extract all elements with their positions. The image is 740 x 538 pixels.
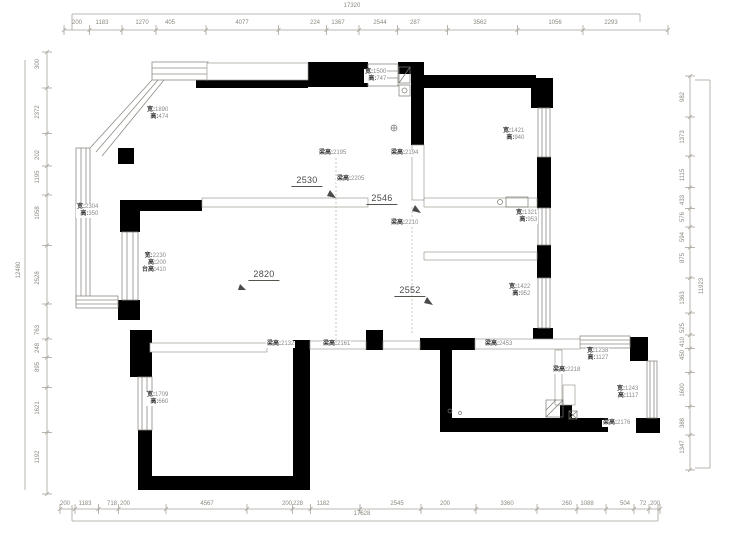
window-size-line: 宽:1243 (617, 386, 638, 393)
dimension-label-right: 1115 (680, 169, 686, 181)
dimension-label-bottom: 260 (562, 501, 572, 507)
dimension-label-right: 1600 (680, 383, 686, 396)
dimension-label-bottom: 3360 (500, 501, 513, 507)
dimension-label-top: 2293 (604, 20, 617, 26)
dimension-label-bottom: 718 (107, 501, 117, 507)
dimension-total-right: 11923 (699, 278, 705, 294)
window-size-line: 宽:1500 (365, 69, 386, 76)
beam-height-label: 梁高:2195 (318, 150, 347, 157)
window-size-label: 宽:1422高:952 (508, 284, 531, 298)
window-size-line: 宽:1709 (147, 392, 168, 399)
dimension-label-top: 200 (72, 20, 82, 26)
window-size-line: 宽:2230 (142, 253, 166, 260)
window-size-line: 宽:1422 (509, 284, 530, 291)
dimension-label-bottom: 72 (640, 501, 647, 507)
dimension-label-bottom: 2545 (390, 501, 403, 507)
dimension-label-bottom: 1183 (79, 501, 92, 507)
dimension-label-right: 1363 (680, 291, 686, 304)
window-size-line: 高:660 (147, 399, 168, 406)
dimension-label-left: 202 (35, 150, 41, 160)
walls-layer (118, 62, 660, 490)
window-size-line: 高:1117 (617, 393, 638, 400)
dimension-label-left: 1621 (35, 401, 41, 414)
window-size-label: 宽:2230高:200台高:410 (141, 253, 167, 274)
window-size-label: 宽:1243高:1117 (616, 386, 639, 400)
dimension-label-right: 433 (680, 195, 686, 205)
dimension-label-top: 4077 (235, 20, 248, 26)
dimension-total-bottom: 17628 (354, 511, 371, 517)
dimension-total-left: 12480 (16, 262, 22, 279)
window-size-line: 宽:1421 (503, 128, 524, 135)
dimension-label-top: 2544 (373, 20, 386, 26)
dimension-label-top: 1056 (548, 20, 561, 26)
window-size-label: 宽:1238高:1127 (586, 348, 609, 362)
dimension-label-bottom: 200 (440, 501, 450, 507)
dimension-label-left: 300 (35, 59, 41, 69)
dimension-label-bottom: 228 (293, 501, 303, 507)
dimension-label-left: 1192 (35, 451, 41, 464)
dimension-label-left: 763 (35, 325, 41, 335)
measurement-label[interactable]: 2546 (366, 193, 397, 205)
dimension-label-right: 410 (680, 337, 686, 347)
window-size-line: 高:200 (142, 260, 166, 267)
window-size-label: 宽:1500高:747 (364, 69, 387, 83)
beam-height-label: 梁高:2210 (390, 220, 419, 227)
window-size-label: 宽:1709高:660 (146, 392, 169, 406)
window-size-line: 高:474 (147, 114, 168, 121)
dimension-label-top: 1270 (135, 20, 148, 26)
beam-height-label: 梁高:2218 (552, 367, 581, 374)
dimension-label-left: 2528 (35, 271, 41, 284)
dimension-label-top: 287 (410, 20, 420, 26)
dimension-label-bottom: 200 (650, 501, 660, 507)
window-size-line: 宽:1890 (147, 107, 168, 114)
dimension-label-top: 3562 (473, 20, 486, 26)
dimension-label-right: 388 (680, 418, 686, 428)
window-size-label: 宽:1890高:474 (146, 107, 169, 121)
dimension-label-right: 875 (680, 253, 686, 263)
floor-plan-canvas: 17320 17628 12480 11923 2001183127040540… (0, 0, 740, 538)
dimension-label-right: 594 (680, 232, 686, 242)
dimension-label-left: 2372 (35, 105, 41, 118)
dimension-label-bottom: 200 (60, 501, 70, 507)
window-size-line: 高:952 (509, 291, 530, 298)
dimension-label-right: 450 (680, 350, 686, 360)
measurement-label[interactable]: 2820 (248, 269, 279, 281)
window-size-line: 高:940 (503, 135, 524, 142)
beam-height-label: 梁高:2132 (266, 341, 295, 348)
floor-drain-icon (391, 125, 397, 131)
window-size-line: 台高:410 (142, 267, 166, 274)
measurement-label[interactable]: 2552 (394, 285, 425, 297)
dimension-total-top: 17320 (344, 3, 361, 9)
window-size-line: 宽:2304 (77, 204, 98, 211)
window-size-line: 高:1127 (587, 355, 608, 362)
guide-lines-layer (336, 158, 412, 340)
window-size-line: 高:953 (516, 217, 537, 224)
dimension-label-left: 248 (35, 343, 41, 353)
dimension-label-bottom: 1088 (580, 501, 593, 507)
window-size-line: 宽:1321 (516, 210, 537, 217)
beam-height-label: 梁高:2205 (336, 176, 365, 183)
measurement-label[interactable]: 2530 (291, 175, 322, 187)
window-size-line: 高:350 (77, 211, 98, 218)
dimension-label-bottom: 200 (282, 501, 292, 507)
beam-height-label: 梁高:2453 (484, 341, 513, 348)
dimension-label-right: 1347 (680, 440, 686, 453)
dimension-label-right: 982 (680, 92, 686, 102)
dimension-label-right: 576 (680, 212, 686, 222)
dimension-label-left: 895 (35, 362, 41, 372)
beam-height-label: 梁高:2176 (602, 420, 631, 427)
dimension-label-bottom: 1182 (317, 501, 330, 507)
window-size-label: 宽:1321高:953 (515, 210, 538, 224)
dimension-label-bottom: 504 (620, 501, 630, 507)
beam-height-label: 梁高:2194 (390, 150, 419, 157)
dimension-label-right: 525 (680, 323, 686, 333)
dimension-label-left: 1195 (35, 171, 41, 184)
window-size-label: 宽:1421高:940 (502, 128, 525, 142)
dimension-label-right: 1373 (680, 130, 686, 143)
dimension-label-top: 1183 (96, 20, 109, 26)
dimension-label-bottom: 4567 (200, 501, 213, 507)
window-size-line: 高:747 (365, 76, 386, 83)
window-size-line: 宽:1238 (587, 348, 608, 355)
beam-height-label: 梁高:2161 (322, 341, 351, 348)
dimension-label-top: 224 (310, 20, 320, 26)
window-size-label: 宽:2304高:350 (76, 204, 99, 218)
dimension-label-bottom: 200 (120, 501, 130, 507)
dimension-label-top: 405 (165, 20, 175, 26)
dimension-label-top: 1367 (331, 20, 344, 26)
beams-openings-layer (150, 63, 580, 405)
dimension-label-left: 1058 (35, 206, 41, 219)
